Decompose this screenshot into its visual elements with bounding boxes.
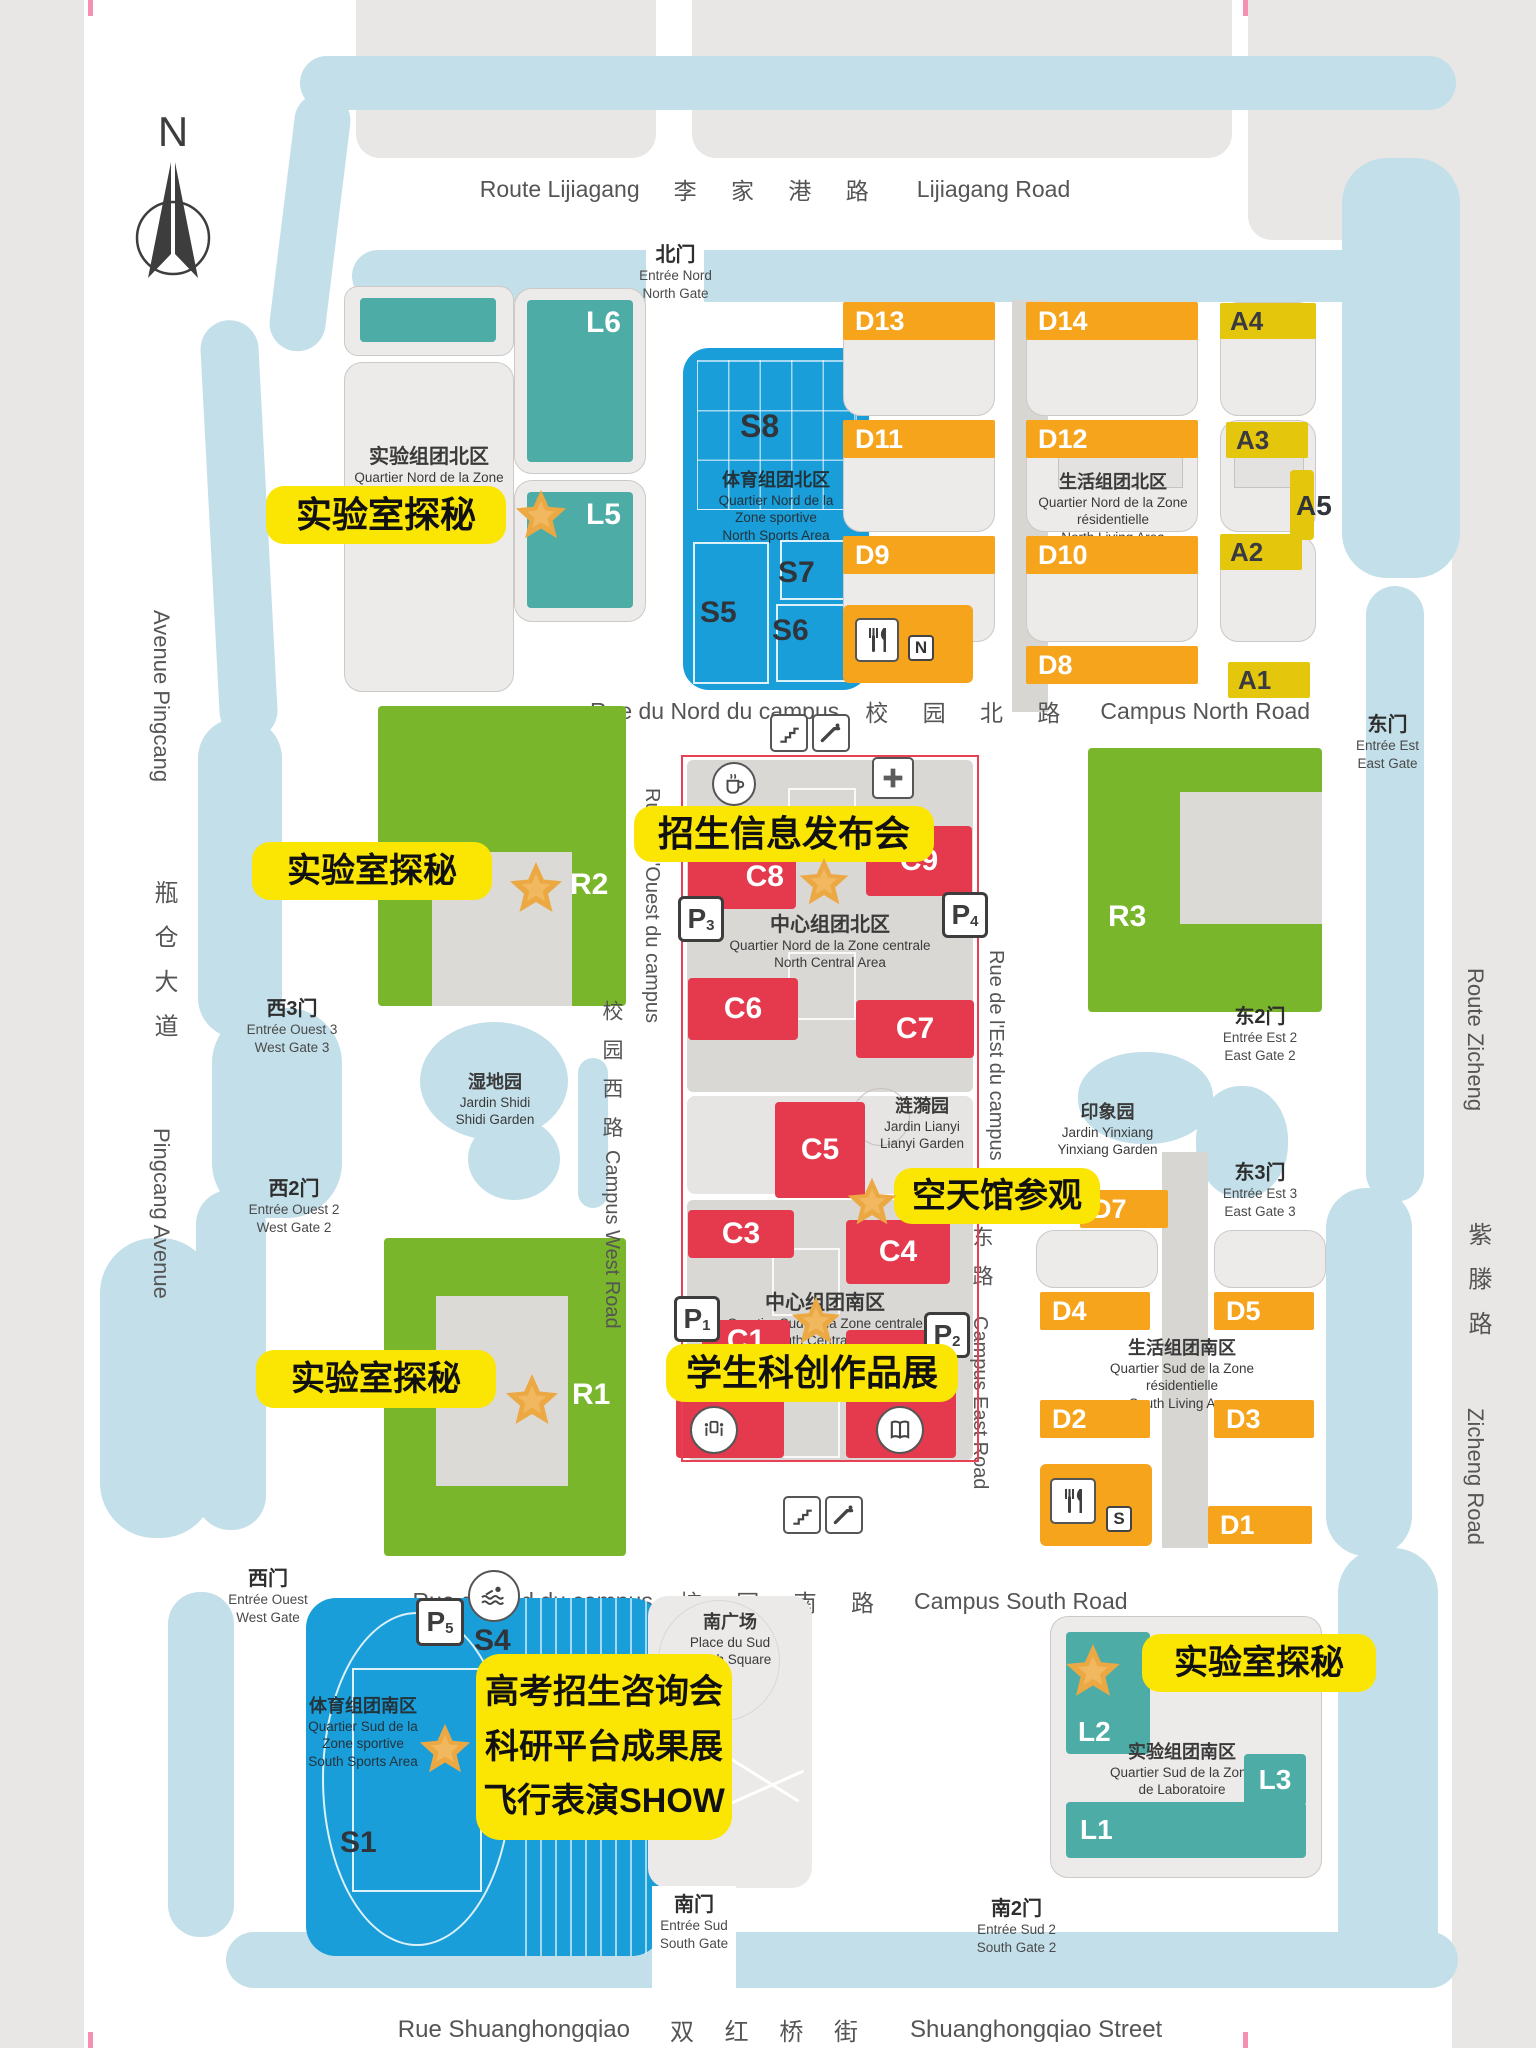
event-star xyxy=(512,486,570,544)
crop-mark xyxy=(1243,0,1248,16)
event-lab-tour-1: 实验室探秘 xyxy=(266,486,506,544)
east-river xyxy=(1326,1188,1412,1556)
building-S6-label: S6 xyxy=(772,614,809,648)
road-pingcang-en: Pingcang Avenue xyxy=(148,1128,174,1299)
event-lab-tour-4: 实验室探秘 xyxy=(1142,1634,1376,1692)
gate-east: 东门 Entrée Est East Gate xyxy=(1340,708,1435,772)
stairs-icon xyxy=(783,1496,821,1534)
compass-needle-icon xyxy=(118,156,228,286)
building-D4: D4 xyxy=(1040,1292,1150,1330)
escalator-icon xyxy=(812,714,850,752)
dining-north-badge: N xyxy=(908,635,934,661)
road-zicheng-en: Zicheng Road xyxy=(1462,1408,1488,1545)
building-S7-label: S7 xyxy=(778,556,815,590)
building-R1-label: R1 xyxy=(572,1378,610,1412)
shidi-pond xyxy=(468,1118,560,1200)
building-D2: D2 xyxy=(1040,1400,1150,1438)
gate-west3: 西3门 Entrée Ouest 3 West Gate 3 xyxy=(232,992,352,1056)
library-book-icon xyxy=(876,1406,924,1454)
building-L6: L6 xyxy=(527,300,633,462)
gate-east2: 东2门 Entrée Est 2 East Gate 2 xyxy=(1210,1000,1310,1064)
parking-P1: P1 xyxy=(674,1296,720,1342)
building-D10: D10 xyxy=(1026,536,1198,574)
building-lab-annex xyxy=(360,298,496,342)
event-lab-tour-3: 实验室探秘 xyxy=(256,1350,496,1408)
building-A5-label: A5 xyxy=(1296,490,1332,522)
cafe-icon xyxy=(712,762,756,806)
building-A3: A3 xyxy=(1226,422,1308,458)
parking-P3: P3 xyxy=(678,896,724,942)
building-D5: D5 xyxy=(1214,1292,1314,1330)
gate-south2: 南2门 Entrée Sud 2 South Gate 2 xyxy=(964,1892,1069,1956)
road-shuanghongqiao: Rue Shuanghongqiao 双 红 桥 街 Shuanghongqia… xyxy=(300,2012,1260,2047)
building-A1: A1 xyxy=(1228,662,1310,698)
event-star xyxy=(844,1174,900,1230)
event-south-program: 高考招生咨询会 科研平台成果展 飞行表演SHOW xyxy=(476,1654,732,1840)
building-L1: L1 xyxy=(1066,1802,1306,1858)
compass: N xyxy=(118,108,228,286)
building-A4: A4 xyxy=(1220,303,1316,339)
zone-sports-north: 体育组团北区 Quartier Nord de la Zone sportive… xyxy=(688,466,864,544)
east-river xyxy=(1366,586,1424,1202)
building-R3-label: R3 xyxy=(1108,900,1146,934)
crop-mark xyxy=(1243,2032,1248,2048)
gate-east3: 东3门 Entrée Est 3 East Gate 3 xyxy=(1210,1156,1310,1220)
zone-shidi: 湿地园 Jardin Shidi Shidi Garden xyxy=(435,1068,555,1129)
restaurant-icon xyxy=(855,618,899,662)
building-D8: D8 xyxy=(1026,646,1198,684)
R3-courtyard xyxy=(1180,792,1322,924)
event-star xyxy=(502,1370,562,1430)
event-star xyxy=(1062,1640,1124,1702)
campus-map: N Route Lijiagang 李 家 港 路 Lijiagang Road… xyxy=(0,0,1536,2048)
building-S1-label: S1 xyxy=(340,1826,377,1860)
gate-west2: 西2门 Entrée Ouest 2 West Gate 2 xyxy=(234,1172,354,1236)
road-campus-east-fr: Rue de l'Est du campus xyxy=(984,950,1007,1161)
road-lijiagang-zh: 李 家 港 路 xyxy=(674,172,883,206)
road-campus-west-en: Campus West Road xyxy=(600,1150,623,1329)
road-campus-north: Rue du Nord du campus 校 园 北 路 Campus Nor… xyxy=(655,694,1245,728)
restaurant-icon xyxy=(1050,1478,1096,1524)
building-S4-label: S4 xyxy=(474,1624,511,1658)
event-star xyxy=(416,1720,474,1778)
road-lijiagang-fr: Route Lijiagang xyxy=(480,176,640,203)
event-admission-info: 招生信息发布会 xyxy=(634,806,934,862)
parking-P4: P4 xyxy=(942,892,988,938)
zone-living-north: 生活组团北区 Quartier Nord de la Zone résident… xyxy=(1028,468,1198,546)
road-zicheng-fr: Route Zicheng xyxy=(1462,968,1488,1111)
building-D11: D11 xyxy=(843,420,995,458)
building-R2-label: R2 xyxy=(570,868,608,902)
river xyxy=(300,56,1456,110)
stairs-icon xyxy=(770,714,808,752)
gate-south: 南门 Entrée Sud South Gate xyxy=(648,1888,740,1952)
museum-icon xyxy=(690,1406,738,1454)
left-margin-block xyxy=(0,0,84,2048)
road-zicheng-zh: 紫滕路 xyxy=(1460,1222,1495,1355)
escalator-icon xyxy=(825,1496,863,1534)
event-star xyxy=(788,1293,844,1349)
road-lijiagang: Route Lijiagang 李 家 港 路 Lijiagang Road xyxy=(400,172,1150,206)
building-S5-label: S5 xyxy=(700,596,737,630)
river xyxy=(266,90,353,355)
road-pingcang-zh: 瓶仓大道 xyxy=(146,880,181,1058)
compass-north-label: N xyxy=(118,108,228,156)
event-student-works: 学生科创作品展 xyxy=(666,1344,958,1402)
east-river xyxy=(1338,1548,1438,1978)
event-aerospace-visit: 空天馆参观 xyxy=(894,1168,1100,1224)
building-D13: D13 xyxy=(843,302,995,340)
living-parcel xyxy=(1214,1230,1326,1288)
building-A2: A2 xyxy=(1220,534,1302,570)
building-D14: D14 xyxy=(1026,302,1198,340)
zone-yinxiang: 印象园 Jardin Yinxiang Yinxiang Garden xyxy=(1040,1098,1175,1159)
building-S8-label: S8 xyxy=(740,408,779,445)
river xyxy=(168,1592,234,1937)
parking-P5: P5 xyxy=(416,1598,464,1646)
event-star xyxy=(796,854,852,910)
building-D9: D9 xyxy=(843,536,995,574)
building-D12: D12 xyxy=(1026,420,1198,458)
living-parcel xyxy=(1036,1230,1158,1288)
east-river xyxy=(1342,158,1460,578)
crop-mark xyxy=(88,2032,93,2048)
crop-mark xyxy=(88,0,93,16)
dining-south-badge: S xyxy=(1106,1506,1132,1532)
road-campus-west-zh: 校园西路 xyxy=(596,1000,626,1155)
road-pingcang-fr: Avenue Pingcang xyxy=(148,610,174,782)
road-lijiagang-en: Lijiagang Road xyxy=(917,176,1070,203)
zone-sports-south: 体育组团南区 Quartier Sud de la Zone sportive … xyxy=(298,1692,428,1770)
swimming-icon xyxy=(468,1570,520,1622)
building-L3: L3 xyxy=(1244,1754,1306,1806)
building-D3: D3 xyxy=(1214,1400,1314,1438)
event-lab-tour-2: 实验室探秘 xyxy=(252,842,492,900)
building-D1: D1 xyxy=(1208,1506,1312,1544)
event-star xyxy=(506,858,566,918)
first-aid-icon xyxy=(872,757,914,799)
